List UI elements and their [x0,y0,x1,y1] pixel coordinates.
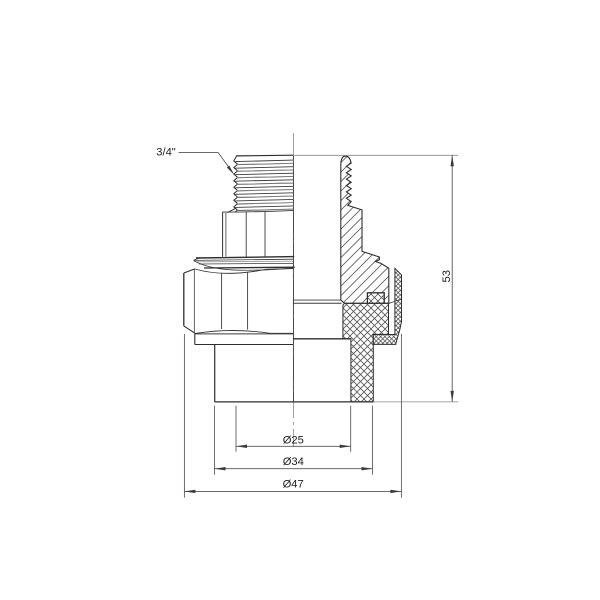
svg-text:Ø34: Ø34 [283,456,304,468]
svg-text:Ø47: Ø47 [283,478,304,490]
svg-text:53: 53 [441,270,453,282]
svg-text:Ø25: Ø25 [283,434,304,446]
svg-text:3/4": 3/4" [156,147,176,159]
